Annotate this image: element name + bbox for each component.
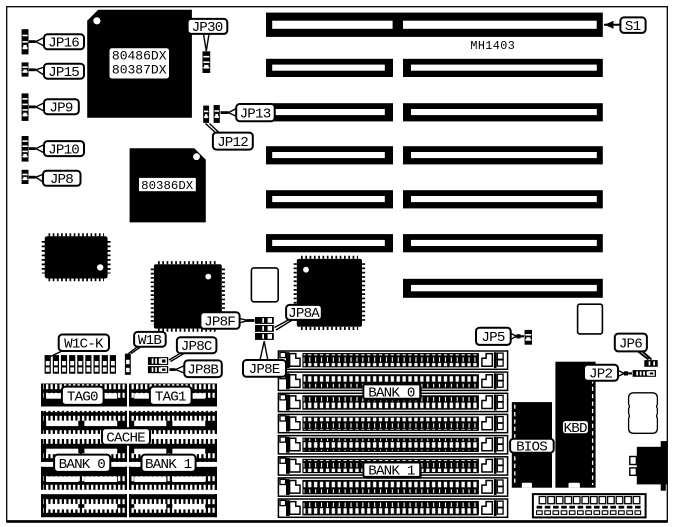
svg-text:S1: S1 [625, 19, 641, 35]
svg-text:W1B: W1B [138, 333, 161, 349]
svg-text:KBD: KBD [564, 421, 587, 437]
svg-text:BIOS: BIOS [516, 440, 547, 456]
svg-text:80486DX: 80486DX [112, 48, 167, 63]
svg-text:TAG1: TAG1 [155, 390, 186, 406]
svg-text:TAG0: TAG0 [67, 390, 98, 406]
svg-text:JP15: JP15 [48, 65, 79, 81]
svg-text:BANK 1: BANK 1 [368, 463, 415, 479]
svg-text:JP9: JP9 [49, 101, 72, 117]
svg-text:80386DX: 80386DX [141, 179, 194, 193]
svg-text:CACHE: CACHE [106, 430, 145, 446]
svg-text:80387DX: 80387DX [112, 63, 167, 78]
svg-text:JP30: JP30 [192, 20, 223, 36]
svg-text:MH1403: MH1403 [470, 39, 515, 53]
svg-text:JP12: JP12 [217, 135, 248, 151]
svg-text:JP13: JP13 [240, 106, 271, 122]
svg-text:JP5: JP5 [481, 330, 504, 346]
svg-text:JP8A: JP8A [288, 306, 320, 322]
svg-text:JP8E: JP8E [249, 362, 280, 378]
svg-text:JP8B: JP8B [187, 363, 218, 379]
svg-text:BANK 0: BANK 0 [368, 385, 415, 401]
svg-text:JP8F: JP8F [204, 314, 235, 330]
svg-text:JP2: JP2 [589, 367, 612, 383]
svg-text:JP16: JP16 [48, 36, 79, 52]
svg-text:JP10: JP10 [48, 142, 79, 158]
svg-text:JP8C: JP8C [181, 339, 212, 355]
svg-text:BANK 1: BANK 1 [145, 457, 192, 473]
svg-text:BANK 0: BANK 0 [59, 457, 106, 473]
svg-text:W1C-K: W1C-K [64, 337, 104, 353]
svg-text:JP8: JP8 [50, 172, 73, 188]
svg-text:JP6: JP6 [619, 336, 642, 352]
